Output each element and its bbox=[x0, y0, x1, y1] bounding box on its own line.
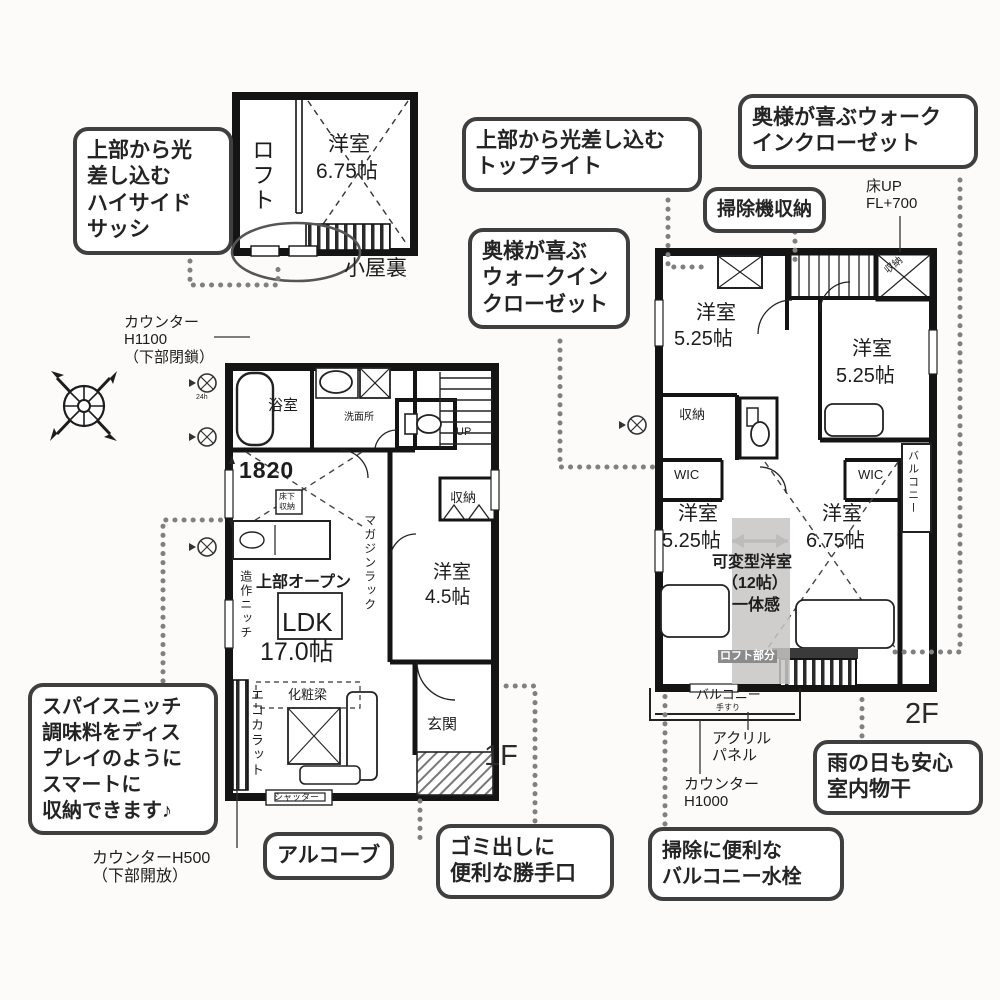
magazine-rack-label: マガジンラック bbox=[362, 514, 376, 612]
compass-icon bbox=[50, 371, 117, 441]
flex-room-line2: （12帖） bbox=[722, 575, 788, 593]
stairs-up-label: UP bbox=[456, 426, 471, 439]
note-line: H1000 bbox=[684, 793, 759, 810]
callout-line: スマートに bbox=[42, 772, 204, 798]
callout-line: 上部から光 bbox=[87, 138, 219, 164]
room-se-label: 洋室 bbox=[822, 503, 862, 526]
porch bbox=[417, 752, 493, 795]
callout-line: 上部から光差し込む bbox=[476, 128, 688, 154]
wic-left-label: WIC bbox=[674, 468, 699, 483]
callout-line: インクローゼット bbox=[752, 131, 964, 157]
callout-line: スパイスニッチ bbox=[42, 694, 204, 720]
callout-highside-sash: 上部から光 差し込む ハイサイド サッシ bbox=[73, 127, 233, 255]
callout-line: 掃除に便利な bbox=[662, 838, 830, 864]
callout-walkin-closet-mid: 奥様が喜ぶ ウォークイン クローゼット bbox=[468, 228, 630, 329]
callout-line: ウォークイン bbox=[482, 265, 616, 291]
callout-line: 調味料をディス bbox=[42, 720, 204, 746]
toilet bbox=[417, 415, 441, 433]
callout-line: クローゼット bbox=[482, 292, 616, 318]
kitchen-counter bbox=[233, 521, 330, 559]
attic-caption: 小屋裏 bbox=[344, 257, 407, 281]
room-washroom: 洗面所 bbox=[344, 412, 374, 424]
underfloor-storage-label: 床下 収納 bbox=[279, 492, 295, 511]
closet-2f-label: 収納 bbox=[679, 408, 705, 423]
attic-loft-label: ロフト bbox=[248, 138, 274, 213]
room-sw-label: 洋室 bbox=[678, 503, 718, 526]
room-se-size: 6.75帖 bbox=[806, 530, 865, 553]
east-balcony-label: バルコニー bbox=[906, 450, 919, 515]
room-ne-size: 5.25帖 bbox=[836, 365, 895, 388]
callout-line: 収納できます♪ bbox=[42, 798, 204, 824]
dimension-1820: 1820 bbox=[239, 457, 294, 483]
highside-window bbox=[251, 246, 279, 256]
callout-line: 室内物干 bbox=[827, 777, 969, 803]
room-bath: 浴室 bbox=[268, 397, 298, 414]
callout-kitchen-door: ゴミ出しに 便利な勝手口 bbox=[436, 824, 614, 899]
ldk-size: 17.0帖 bbox=[260, 638, 334, 667]
loft-ladder-hatch bbox=[306, 224, 390, 250]
callout-line: バルコニー水栓 bbox=[662, 864, 830, 890]
room-nw-size: 5.25帖 bbox=[674, 328, 733, 351]
callout-line: ゴミ出しに bbox=[450, 835, 600, 861]
shutter-label: シャッター bbox=[274, 792, 319, 802]
callout-line: 雨の日も安心 bbox=[827, 751, 969, 777]
open-above-label: 上部オープン bbox=[256, 574, 351, 592]
bed bbox=[796, 600, 894, 648]
floor-up-label: 床UP FL+700 bbox=[866, 178, 917, 213]
note-line: パネル bbox=[712, 747, 771, 764]
entrance-label: 玄関 bbox=[427, 716, 457, 733]
counter-h1100-label: カウンター H1100 （下部閉鎖） bbox=[124, 314, 214, 366]
floorplan-page: 上部から光 差し込む ハイサイド サッシ 上部から光差し込む トップライト 奥様… bbox=[0, 0, 1000, 1000]
floor-2f-label: 2F bbox=[905, 698, 939, 731]
loft-ladder-hatch bbox=[780, 659, 856, 686]
callout-line: 奥様が喜ぶ bbox=[482, 239, 616, 265]
note-line: アクリル bbox=[712, 730, 771, 747]
note-line: H1100 bbox=[124, 331, 214, 348]
note-line: （下部閉鎖） bbox=[124, 349, 214, 366]
callout-line: ハイサイド bbox=[87, 191, 219, 217]
callout-line: 掃除機収納 bbox=[717, 198, 812, 222]
callout-walkin-closet-upper: 奥様が喜ぶウォーク インクローゼット bbox=[738, 94, 978, 169]
note-line: カウンター bbox=[684, 776, 759, 793]
washbasin bbox=[320, 371, 352, 393]
floor-1f-label: 1F bbox=[484, 740, 518, 773]
note-line: カウンター bbox=[124, 314, 214, 331]
callout-balcony-faucet: 掃除に便利な バルコニー水栓 bbox=[648, 827, 844, 901]
callout-line: トップライト bbox=[476, 154, 688, 180]
note-line: FL+700 bbox=[866, 195, 917, 212]
ldk-label: LDK bbox=[282, 608, 333, 638]
attic-room-label: 洋室 bbox=[328, 133, 370, 157]
room-45-label: 洋室 bbox=[433, 562, 471, 584]
callout-toplight: 上部から光差し込む トップライト bbox=[462, 117, 702, 192]
vent-24h-label: 24h bbox=[196, 394, 208, 402]
callout-indoor-drying: 雨の日も安心 室内物干 bbox=[813, 740, 983, 815]
note-line: カウンターH500 bbox=[92, 850, 210, 868]
note-line: （下部開放） bbox=[92, 868, 210, 886]
room-45-size: 4.5帖 bbox=[425, 587, 470, 609]
handrail-label: 手すり bbox=[716, 703, 740, 712]
room-sw-size: 5.25帖 bbox=[662, 530, 721, 553]
callout-line: 便利な勝手口 bbox=[450, 861, 600, 887]
loft-part-label: ロフト部分 bbox=[718, 650, 777, 663]
callout-line: 奥様が喜ぶウォーク bbox=[752, 105, 964, 131]
bed bbox=[825, 404, 883, 436]
attic-room-size: 6.75帖 bbox=[316, 160, 378, 184]
callout-alcove: アルコーブ bbox=[263, 832, 394, 880]
counter-h500-label: カウンターH500 （下部開放） bbox=[92, 850, 210, 887]
wic-right-label: WIC bbox=[858, 468, 883, 483]
highside-window bbox=[289, 246, 317, 256]
callout-vacuum-storage: 掃除機収納 bbox=[703, 187, 826, 233]
counter-h1000-label: カウンター H1000 bbox=[684, 776, 759, 811]
south-balcony-label: バルコニー bbox=[696, 688, 761, 703]
callout-line: プレイのように bbox=[42, 746, 204, 772]
closet-1f-label: 収納 bbox=[450, 491, 476, 506]
niche-label: 造作ニッチ bbox=[238, 570, 252, 640]
note-line: 収納 bbox=[279, 502, 295, 512]
note-line: 床UP bbox=[866, 178, 917, 195]
eco-tile-label: エコカラット bbox=[248, 688, 263, 778]
callout-line: 差し込む bbox=[87, 164, 219, 190]
room-nw-label: 洋室 bbox=[696, 302, 736, 325]
callout-line: アルコーブ bbox=[277, 843, 380, 869]
flex-room-line3: 一体感 bbox=[732, 597, 780, 615]
callout-spice-niche: スパイスニッチ 調味料をディス プレイのように スマートに 収納できます♪ bbox=[28, 683, 218, 835]
note-line: 床下 bbox=[279, 492, 295, 502]
bed bbox=[661, 585, 729, 637]
flex-room-line1: 可変型洋室 bbox=[712, 554, 792, 572]
acrylic-panel-label: アクリル パネル bbox=[712, 730, 771, 765]
room-ne-label: 洋室 bbox=[852, 338, 892, 361]
beam-label: 化粧梁 bbox=[288, 688, 327, 703]
callout-line: サッシ bbox=[87, 217, 219, 243]
